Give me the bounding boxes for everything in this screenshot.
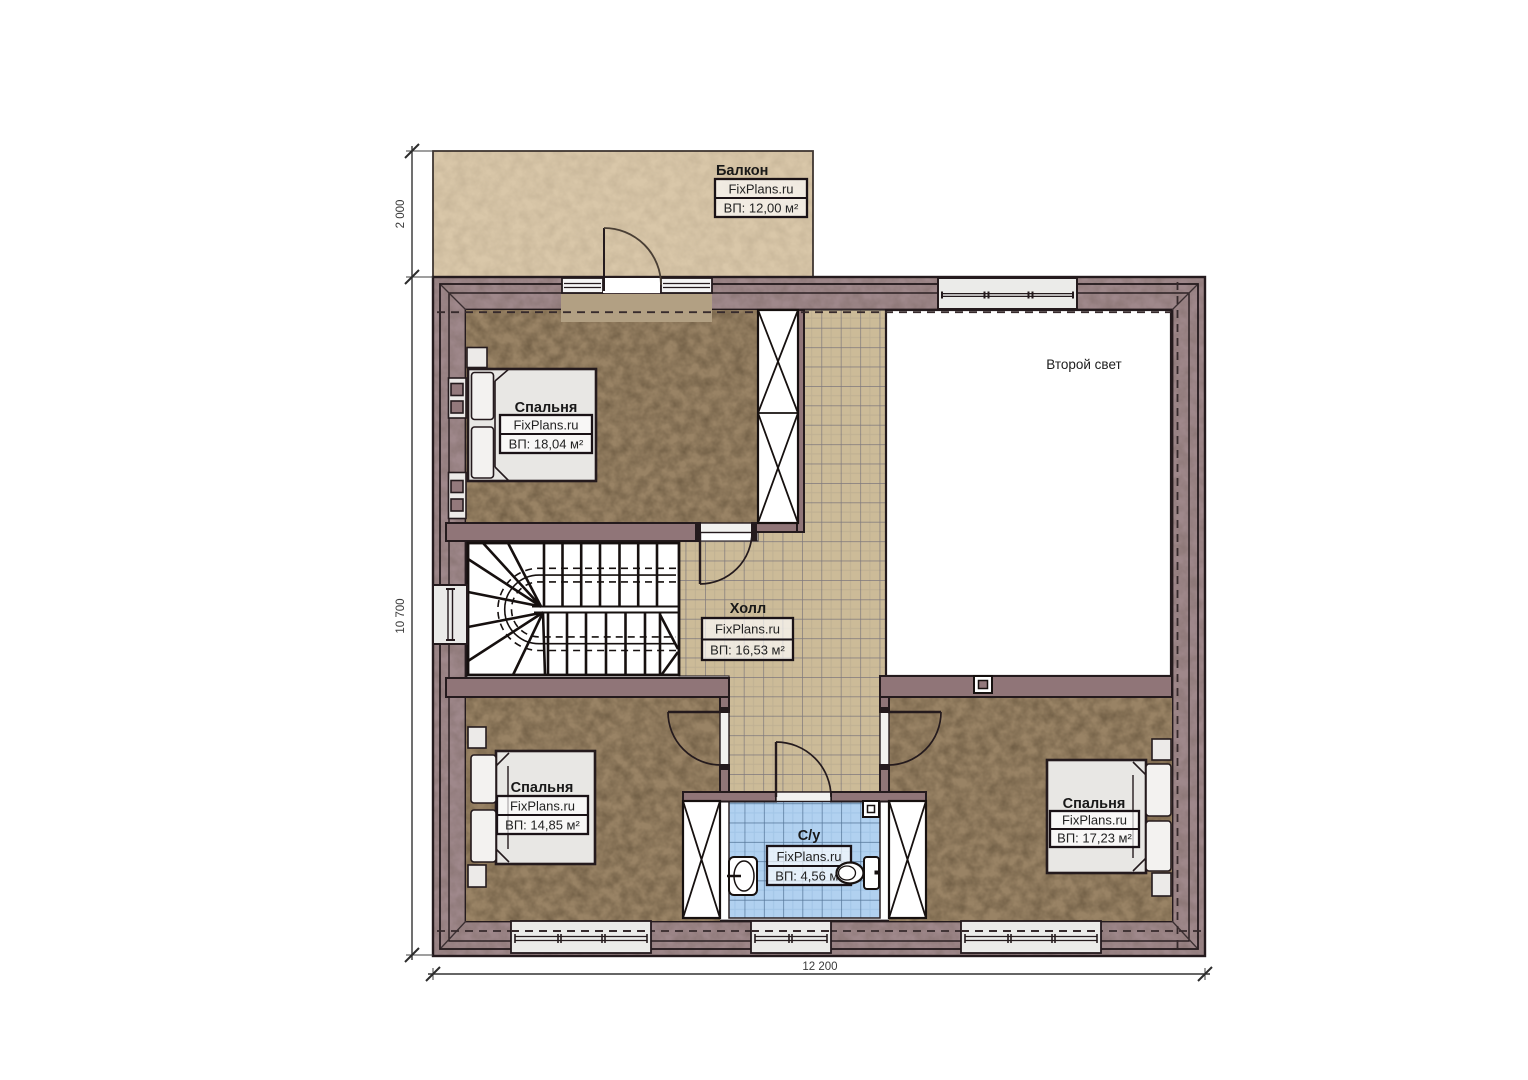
- svg-text:FixPlans.ru: FixPlans.ru: [513, 418, 578, 433]
- svg-text:Спальня: Спальня: [511, 780, 574, 796]
- svg-text:FixPlans.ru: FixPlans.ru: [1062, 813, 1127, 828]
- svg-text:ВП: 12,00 м²: ВП: 12,00 м²: [724, 201, 799, 216]
- svg-text:ВП: 4,56 м²: ВП: 4,56 м²: [775, 869, 843, 884]
- svg-text:FixPlans.ru: FixPlans.ru: [728, 182, 793, 197]
- svg-text:2 000: 2 000: [395, 200, 407, 229]
- svg-text:10 700: 10 700: [395, 598, 407, 633]
- svg-text:С/у: С/у: [798, 828, 821, 844]
- svg-text:Спальня: Спальня: [515, 400, 578, 416]
- svg-text:Балкон: Балкон: [716, 163, 768, 179]
- svg-text:FixPlans.ru: FixPlans.ru: [715, 622, 780, 637]
- svg-text:ВП: 18,04 м²: ВП: 18,04 м²: [509, 437, 584, 452]
- svg-text:Второй свет: Второй свет: [1046, 357, 1121, 372]
- svg-text:Спальня: Спальня: [1063, 796, 1126, 812]
- svg-text:ВП: 17,23 м²: ВП: 17,23 м²: [1057, 831, 1132, 846]
- svg-text:ВП: 16,53 м²: ВП: 16,53 м²: [710, 643, 785, 658]
- svg-text:FixPlans.ru: FixPlans.ru: [776, 849, 841, 864]
- svg-text:ВП: 14,85 м²: ВП: 14,85 м²: [505, 818, 580, 833]
- svg-text:12 200: 12 200: [802, 961, 837, 973]
- svg-text:FixPlans.ru: FixPlans.ru: [510, 799, 575, 814]
- svg-text:Холл: Холл: [730, 601, 766, 617]
